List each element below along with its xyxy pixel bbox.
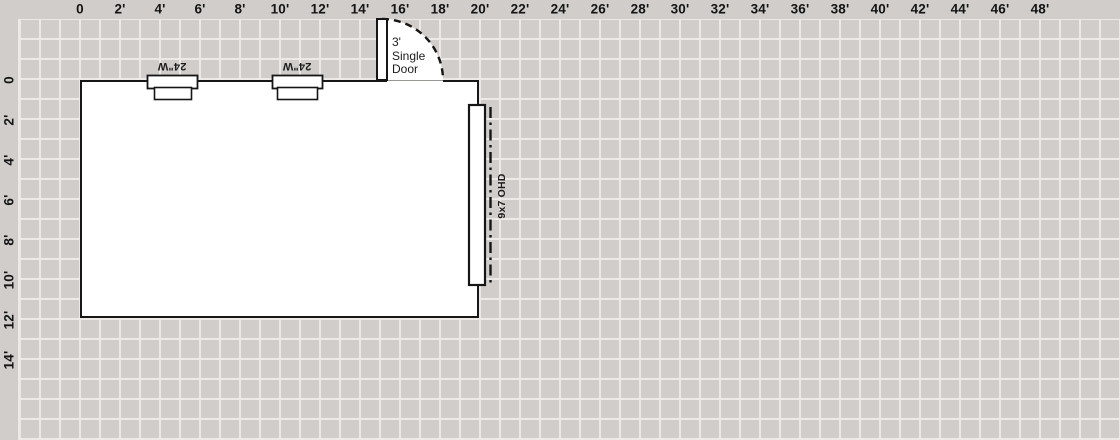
window-symbol-1[interactable]	[148, 76, 198, 100]
room-outline[interactable]	[81, 81, 478, 317]
window-frame-inner	[278, 88, 318, 100]
overhead-door-panel[interactable]	[469, 105, 485, 285]
door-label: 3' Single Door	[392, 36, 444, 77]
window-frame-inner	[155, 88, 192, 100]
window-symbol-2[interactable]	[273, 76, 323, 100]
window-frame-outer	[148, 76, 198, 89]
door-leaf[interactable]	[377, 19, 387, 80]
window-frame-outer	[273, 76, 323, 89]
window-label-2: 24"W	[283, 60, 312, 72]
design-canvas[interactable]: 02'4'6'8'10'12'14'16'18'20'22'24'26'28'3…	[0, 0, 1120, 440]
window-label-1: 24"W	[158, 60, 187, 72]
overhead-door-label: 9x7 OHD	[496, 173, 508, 218]
